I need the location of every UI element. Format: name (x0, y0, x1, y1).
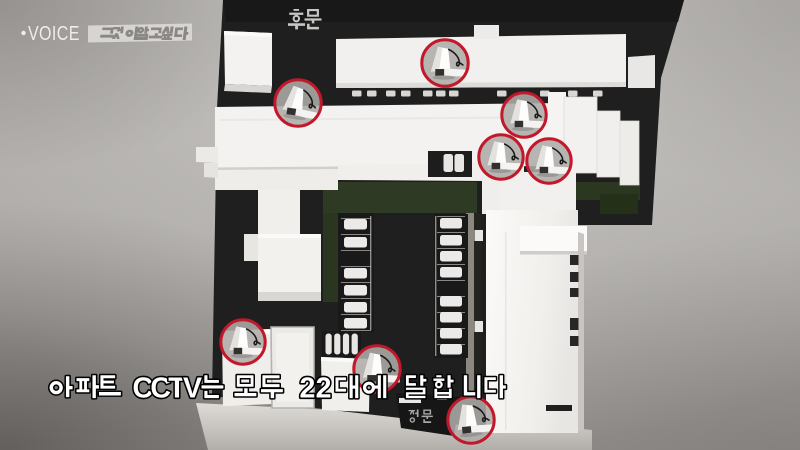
svg-text:22: 22 (300, 373, 332, 405)
svg-text:CCTV: CCTV (133, 373, 203, 405)
svg-text:VOICE: VOICE (28, 22, 80, 44)
